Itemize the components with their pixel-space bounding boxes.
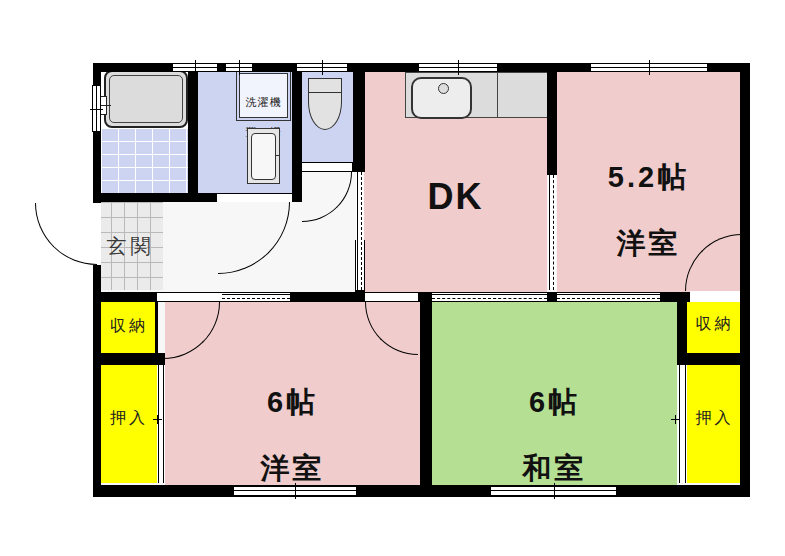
fusuma-closet-right <box>678 365 687 483</box>
label-closet-left: 押入 <box>101 408 157 429</box>
label-storage-right: 収納 <box>687 314 742 335</box>
label-western52-type: 洋室 <box>617 227 681 259</box>
toilet-door-opening <box>302 163 352 171</box>
label-japanese6-size: 6帖 <box>529 386 580 418</box>
bathtub-icon <box>104 70 188 128</box>
window-bottom-japanese6 <box>490 486 617 496</box>
window-top-western52 <box>590 63 708 72</box>
dk-western6-door-opening <box>365 293 418 301</box>
toilet-icon <box>308 78 342 128</box>
wall-storage-right-divider <box>677 353 750 365</box>
window-bottom-western6 <box>233 486 357 496</box>
kitchen-counter <box>405 72 548 118</box>
wall-storage-left-divider <box>93 353 165 365</box>
window-top-dk <box>418 63 498 72</box>
hall-western6-door-opening <box>157 293 222 301</box>
window-top-laundry <box>225 63 253 72</box>
label-japanese6: 6帖 和室 <box>432 353 677 485</box>
label-western6-type: 洋室 <box>261 452 325 484</box>
bathroom-floor-tiles <box>101 128 188 193</box>
wall-bath-bottom <box>93 193 198 202</box>
sliding-door-hall-western6 <box>222 293 290 301</box>
sliding-door-dk-western52 <box>548 175 556 290</box>
fusuma-closet-left <box>157 365 165 483</box>
window-top-toilet <box>296 63 348 72</box>
entrance-door-arc <box>35 203 97 265</box>
laundry-door-opening <box>217 194 292 202</box>
sliding-door-western52-japanese6 <box>557 293 660 301</box>
label-entrance: 玄関 <box>98 233 163 260</box>
wall-dk-western52 <box>547 63 557 175</box>
floor-plan-canvas: 洗濯機 置 場 <box>0 0 785 556</box>
sliding-door-hall-dk <box>356 172 364 290</box>
label-western52-size: 5.2帖 <box>608 161 689 193</box>
label-japanese6-type: 和室 <box>523 452 587 484</box>
label-western6: 6帖 洋室 <box>165 353 420 485</box>
wall-western6-japanese6 <box>420 292 432 497</box>
label-western52: 5.2帖 洋室 <box>557 128 740 260</box>
label-closet-right: 押入 <box>687 408 742 429</box>
window-top-bath <box>172 63 218 72</box>
wall-bath-right <box>188 63 198 202</box>
sliding-door-dk-japanese6 <box>432 293 547 301</box>
window-left-bath <box>92 85 101 132</box>
laundry-label-line1: 洗濯機 <box>246 96 282 108</box>
label-dk: DK <box>364 176 547 218</box>
sink-faucet-icon <box>438 83 449 94</box>
laundry-pan-box: 洗濯機 置 場 <box>239 73 288 118</box>
wall-laundry-right <box>292 63 302 196</box>
label-storage-left: 収納 <box>101 316 157 337</box>
wall-toilet-dk <box>353 63 365 172</box>
label-western6-size: 6帖 <box>267 386 318 418</box>
wall-storage-right-side <box>677 292 687 353</box>
washbasin-icon <box>247 128 280 184</box>
western52-storage-door-opening <box>690 291 740 302</box>
